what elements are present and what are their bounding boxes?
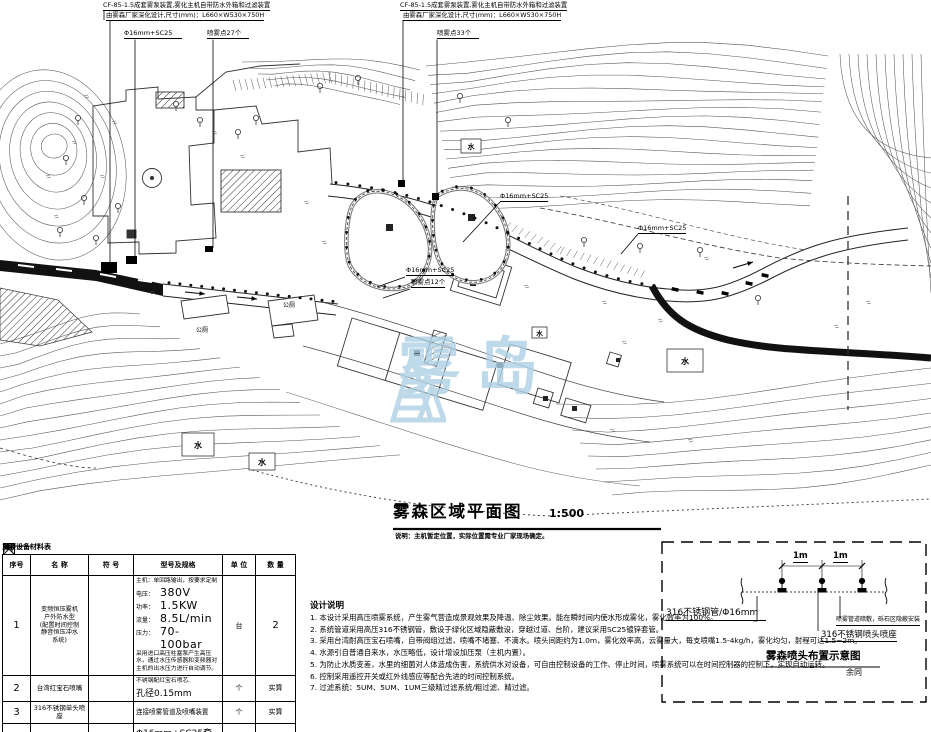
design-notes: 设计说明 1. 本设计采用高压喷雾系统，产生雾气营造成景观效果及降温、除尘效果。… bbox=[310, 599, 930, 695]
design-notes-title: 设计说明 bbox=[310, 599, 930, 611]
stream-band bbox=[652, 286, 931, 358]
dimension-lines bbox=[779, 560, 865, 578]
drawing-title: 雾森区域平面图 bbox=[393, 503, 523, 521]
annotation-mid-line2: 由雾森厂家深化设计,尺寸(mm)：L660×W530×750H bbox=[403, 12, 561, 21]
red-mark bbox=[444, 345, 449, 348]
drawing-scale: 1:500 bbox=[549, 508, 584, 520]
row2-no: 2 bbox=[3, 676, 31, 702]
equipment-table-caption: 主要设备材料表 bbox=[2, 542, 295, 552]
toilet-label: 公厕 bbox=[196, 328, 208, 335]
detail-dim-label: 1m bbox=[793, 552, 808, 563]
row3-symbol nozzle-base-icon bbox=[89, 701, 134, 723]
detail-nozzle-label: 316不锈钢喷头喷座 bbox=[821, 631, 897, 642]
detail-pipe-label: 316不锈钢管/Φ16mm bbox=[666, 609, 766, 621]
row4-spec: Φ16mm+SC25套管 不锈钢管 bbox=[134, 723, 223, 732]
table-header-row: 序号 名 称 符 号 型号及规格 单 位 数 量 bbox=[3, 555, 296, 576]
equipment-table: 主要设备材料表 序号 名 称 符 号 型号及规格 单 位 数 量 1 变频恒压雾… bbox=[2, 542, 295, 732]
detail-subtitle: 余同 bbox=[846, 669, 862, 678]
detail-laying-label: 喷雾管道暗敷，砾石区隐蔽安装 bbox=[836, 617, 920, 626]
drawing-note: 说明：主机暂定位置，实际位置需专业厂家现场确定。 bbox=[395, 533, 548, 540]
col-header-no: 序号 bbox=[3, 555, 31, 576]
water-label: 水 bbox=[536, 329, 543, 338]
annotation-left-pipe-label: Φ16mm+SC25 bbox=[124, 30, 182, 39]
table-row: 2 台湾红宝石喷嘴 不锈钢配红宝石喷芯, 孔径0.15mm 个 实算 bbox=[3, 676, 296, 702]
row3-no: 3 bbox=[3, 701, 31, 723]
col-header-symbol: 符 号 bbox=[89, 555, 134, 576]
design-note-item: 7. 过滤系统：5UM、5UM、1UM三级精过滤系统/粗过滤、精过滤。 bbox=[310, 683, 930, 694]
col-header-unit: 单 位 bbox=[223, 555, 256, 576]
row3-spec: 连接喷雾管道及喷嘴装置 bbox=[134, 701, 223, 723]
annotation-mid-spray-label: 喷雾点33个 bbox=[437, 30, 479, 39]
annotation-left-spray-label: 喷雾点27个 bbox=[207, 30, 249, 39]
nozzle-symbols bbox=[778, 578, 866, 592]
pipe-label-b: Φ16mm+SC25 bbox=[638, 225, 686, 234]
row4-name: 高压316不锈钢+PC bbox=[31, 723, 89, 732]
pipe-label-a: Φ16mm+SC25 bbox=[500, 193, 548, 202]
detail-dim-label: 1m bbox=[833, 552, 848, 563]
detail-title: 雾森喷头布置示意图 bbox=[766, 651, 861, 663]
water-label: 水 bbox=[193, 440, 203, 450]
row1-no: 1 bbox=[3, 576, 31, 676]
annotation-left-line1: CF-85-1.5成套雾泵装置,雾化主机自带防水外箱和过滤装置 bbox=[103, 2, 270, 11]
table-row: 1 变频恒压雾机户外防水型 (配置时间控制静音恒压冲水 系统) 主机：单回路输出… bbox=[3, 576, 296, 676]
annotation-left-line2: 由雾森厂家深化设计,尺寸(mm)：L660×W530×750H bbox=[106, 12, 264, 21]
design-note-item: 6. 控制采用遥控开关或红外线感应等配合先进的时间控制系统。 bbox=[310, 672, 930, 683]
row4-qty: 实算 bbox=[256, 723, 296, 732]
row1-name: 变频恒压雾机户外防水型 (配置时间控制静音恒压冲水 系统) bbox=[31, 576, 89, 676]
row1-spec: 主机：单回路输出，按要求定制 电压：380V 功率：1.5KW 流量：8.5L/… bbox=[134, 576, 223, 676]
row2-symbol nozzle-dot-icon bbox=[89, 676, 134, 702]
row4-no: 4 bbox=[3, 723, 31, 732]
row1-symbol fog-host-icon bbox=[89, 576, 134, 676]
col-header-spec: 型号及规格 bbox=[134, 555, 223, 576]
drawing-sheet: 水 水 水 水 水 bbox=[0, 0, 931, 732]
table-row: 4 高压316不锈钢+PC Φ16mm+SC25套管 不锈钢管 米 实算 bbox=[3, 723, 296, 732]
row4-unit: 米 bbox=[223, 723, 256, 732]
water-label: 水 bbox=[680, 356, 690, 366]
row2-name: 台湾红宝石喷嘴 bbox=[31, 676, 89, 702]
water-label: 水 bbox=[257, 457, 267, 467]
row2-spec: 不锈钢配红宝石喷芯, 孔径0.15mm bbox=[134, 676, 223, 702]
row3-unit: 个 bbox=[223, 701, 256, 723]
toilet-label: 公厕 bbox=[283, 303, 295, 310]
row3-name: 316不锈钢单头喷座 bbox=[31, 701, 89, 723]
row2-unit: 个 bbox=[223, 676, 256, 702]
pipe-label-c: Φ16mm+SC25 bbox=[406, 267, 454, 276]
annotation-mid-line1: CF-85-1.5成套雾泵装置,雾化主机自带防水外箱和过滤装置 bbox=[400, 2, 567, 11]
water-label: 水 bbox=[468, 142, 476, 151]
row1-unit: 台 bbox=[223, 576, 256, 676]
table-row: 3 316不锈钢单头喷座 连接喷雾管道及喷嘴装置 个 实算 bbox=[3, 701, 296, 723]
equipment-table-grid: 序号 名 称 符 号 型号及规格 单 位 数 量 1 变频恒压雾机户外防水型 (… bbox=[2, 554, 296, 732]
row3-qty: 实算 bbox=[256, 701, 296, 723]
row2-qty: 实算 bbox=[256, 676, 296, 702]
spray-label-c: 喷雾点12个 bbox=[411, 279, 445, 288]
hatched-slope-area bbox=[0, 288, 92, 346]
row4-symbol pipe-line-icon bbox=[89, 723, 134, 732]
row1-qty: 2 bbox=[256, 576, 296, 676]
col-header-qty: 数 量 bbox=[256, 555, 296, 576]
col-header-name: 名 称 bbox=[31, 555, 89, 576]
